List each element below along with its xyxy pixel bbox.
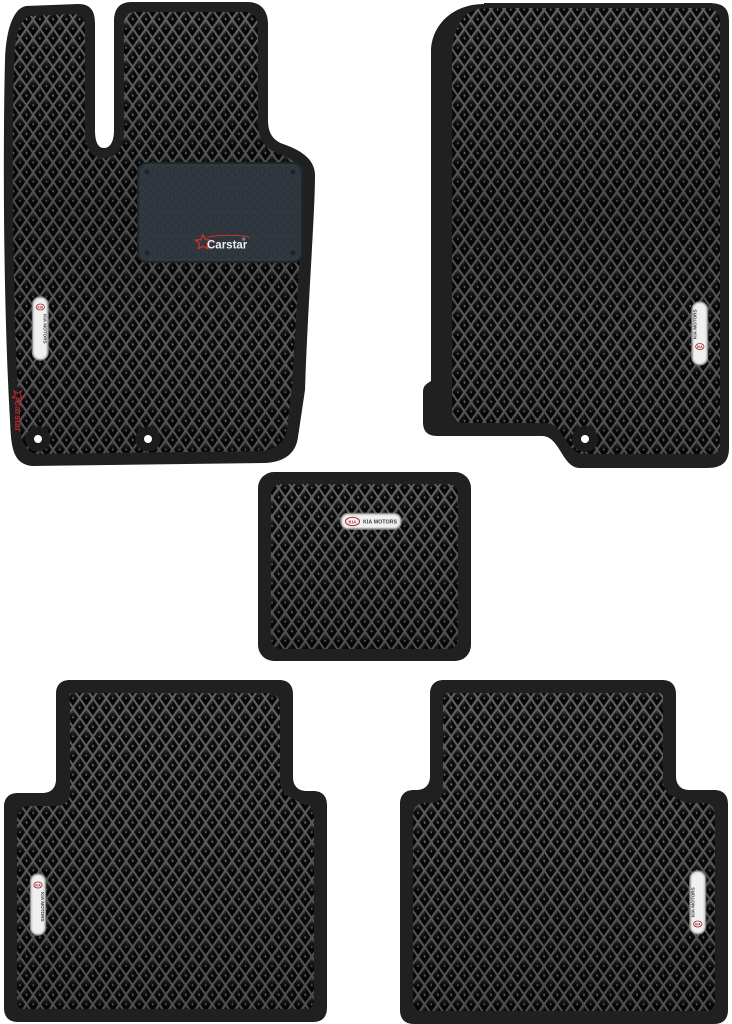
svg-text:KIA MOTORS: KIA MOTORS [363, 520, 398, 526]
svg-text:Carstar: Carstar [13, 400, 23, 432]
svg-text:KIA MOTORS: KIA MOTORS [40, 892, 45, 922]
svg-text:KIA MOTORS: KIA MOTORS [43, 314, 48, 344]
svg-text:KIA: KIA [348, 519, 356, 524]
svg-text:KIA: KIA [38, 306, 44, 310]
svg-text:KIA MOTORS: KIA MOTORS [691, 887, 696, 917]
svg-text:KIA: KIA [695, 923, 701, 927]
svg-text:KIA: KIA [35, 884, 41, 888]
svg-text:KIA: KIA [697, 345, 703, 349]
svg-text:KIA MOTORS: KIA MOTORS [693, 309, 698, 339]
